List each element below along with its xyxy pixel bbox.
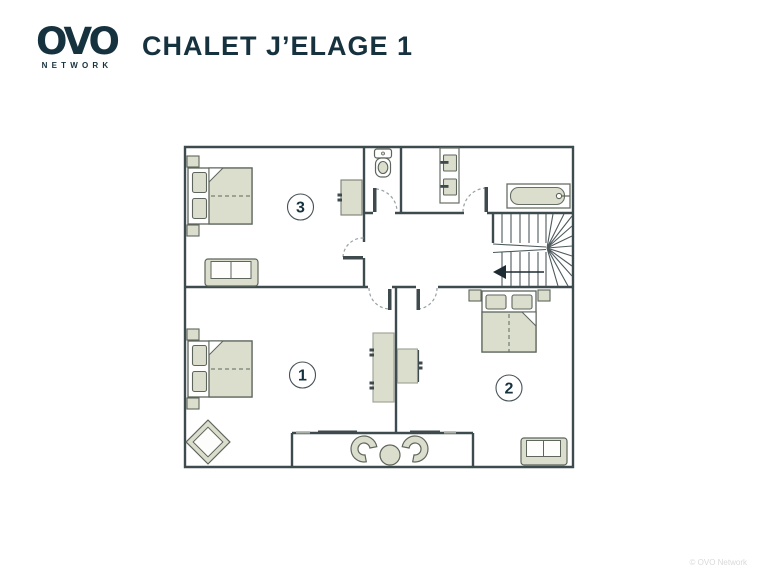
door-arc-room2 (419, 288, 437, 309)
room-label-2: 2 (505, 381, 514, 398)
copyright-watermark: © OVO Network (690, 558, 747, 567)
room-label-3: 3 (296, 200, 305, 217)
door-jamb (444, 431, 456, 433)
sliding-door-icon (318, 431, 357, 435)
bed-icon (188, 341, 252, 397)
sofa-icon (205, 259, 258, 286)
door-jamb (296, 431, 310, 433)
bathtub-icon (507, 184, 570, 208)
nightstand-icon (538, 290, 550, 301)
door-leaf-icon (388, 289, 392, 310)
nightstand-icon (187, 225, 199, 236)
room-3: 3 (187, 156, 362, 286)
door-leaf-icon (373, 188, 377, 212)
room-label-1: 1 (298, 368, 307, 385)
door-leaf-icon (343, 256, 363, 260)
staircase-icon (493, 214, 572, 286)
curved-armchair-icon (351, 436, 377, 462)
nightstand-icon (187, 156, 199, 167)
armchair-icon (186, 420, 230, 464)
toilet-icon (375, 149, 392, 177)
round-table-icon (380, 445, 400, 465)
direction-arrow-icon (493, 265, 544, 279)
wardrobe-icon (370, 333, 395, 402)
nightstand-icon (187, 398, 199, 409)
door-leaf-icon (417, 289, 421, 310)
bed-icon (482, 291, 536, 352)
balcony (296, 431, 456, 466)
sliding-door-icon (410, 431, 440, 435)
bed-icon (188, 168, 252, 224)
door-arc-room3 (343, 238, 364, 257)
door-arc-bathroom (463, 188, 486, 212)
nightstand-icon (187, 329, 199, 340)
door-arc-room1 (369, 288, 390, 309)
door-leaf-icon (485, 187, 489, 212)
desk-icon (398, 349, 423, 383)
sink-vanity-icon (440, 148, 459, 203)
wardrobe-icon (338, 180, 363, 215)
floor-plan: 3 1 (0, 0, 767, 575)
sofa-icon (521, 438, 567, 465)
curved-armchair-icon (402, 436, 428, 462)
door-arc-wc (376, 189, 397, 211)
nightstand-icon (469, 290, 481, 301)
